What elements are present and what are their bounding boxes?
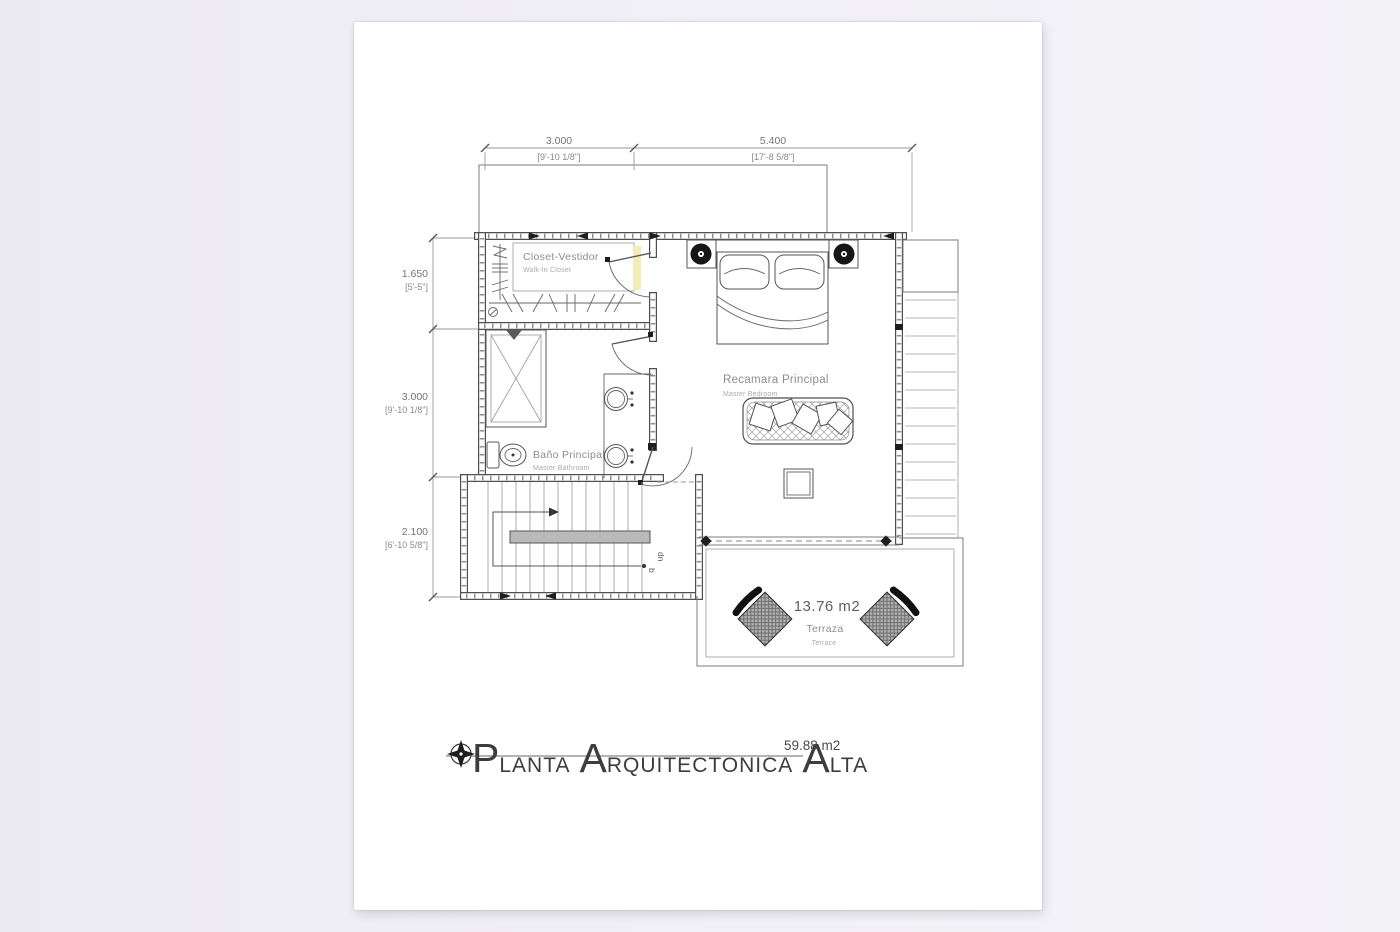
- louver-lines: [905, 300, 956, 534]
- dim-left-3-imperial: [6'-10 5/8"]: [385, 540, 428, 550]
- terrace-name-en-label: Terrace: [812, 640, 837, 647]
- sink-bottom: [605, 445, 634, 468]
- floor-plan-svg: 3.000 [9'-10 1/8"] 5.400 [17'-8 5/8"] 1.…: [0, 0, 1400, 932]
- bedroom-room: Recamara Principal Master Bedroom: [638, 240, 858, 498]
- dim-top-1-imperial: [9'-10 1/8"]: [538, 152, 581, 162]
- louver-strip: [903, 240, 958, 538]
- bathroom-room: Baño Principal Master Bathroom: [486, 330, 653, 478]
- sofa: [743, 398, 853, 444]
- closet-room: Closet-Vestidor Walk-In Closet: [489, 243, 652, 317]
- dim-top-1-metric: 3.000: [546, 135, 572, 147]
- door-highlight: [633, 246, 641, 290]
- side-table: [784, 469, 813, 498]
- canvas: { "sheet": { "background": "#ffffff", "c…: [0, 0, 1400, 932]
- stair-down-label: dn: [656, 552, 666, 562]
- dim-left-2-metric: 3.000: [402, 391, 428, 403]
- bedroom-name-en-label: Master Bedroom: [723, 391, 778, 398]
- dim-top-2-imperial: [17'-8 5/8"]: [752, 152, 795, 162]
- sink-top: [605, 388, 634, 411]
- bathroom-name-label: Baño Principal: [533, 449, 605, 461]
- dim-left-1-metric: 1.650: [402, 268, 428, 280]
- vanity-counter: [604, 374, 651, 478]
- headboard: [716, 240, 829, 252]
- title-area-label: 59.88 m2: [784, 738, 840, 753]
- closet-name-en-label: Walk-In Closet: [523, 267, 571, 274]
- bedroom-name-label: Recamara Principal: [723, 374, 829, 386]
- terrace-chair-right: [860, 587, 919, 646]
- toilet: [487, 442, 526, 468]
- title-block: PLANTAARQUITECTONICAALTA 59.88 m2: [446, 735, 868, 781]
- dim-left-3-metric: 2.100: [402, 526, 428, 538]
- closet-name-label: Closet-Vestidor: [523, 251, 599, 263]
- closet-hangers-left: [489, 244, 509, 317]
- terrace-area-label: 13.76 m2: [794, 598, 861, 615]
- closet-door: [605, 253, 651, 297]
- stair-down-sub-label: b: [647, 568, 657, 573]
- bed: [687, 240, 858, 344]
- stairs: dn b: [488, 482, 666, 592]
- terrace-name-label: Terraza: [806, 623, 843, 635]
- bathroom-name-en-label: Master Bathroom: [533, 465, 590, 472]
- stair-handrail: [510, 531, 650, 543]
- dim-left-1-imperial: [5'-5"]: [405, 282, 428, 292]
- terrace-chair-left: [733, 587, 792, 646]
- terrace: 13.76 m2 Terraza Terrace: [697, 538, 963, 666]
- dim-left-2-imperial: [9'-10 1/8"]: [385, 405, 428, 415]
- closet-hanger-rod: [489, 294, 641, 312]
- dim-top-2-metric: 5.400: [760, 135, 786, 147]
- bathroom-door: [612, 332, 653, 375]
- roof-outline: [479, 152, 912, 232]
- shower: [486, 330, 546, 427]
- north-compass-icon: [447, 740, 475, 768]
